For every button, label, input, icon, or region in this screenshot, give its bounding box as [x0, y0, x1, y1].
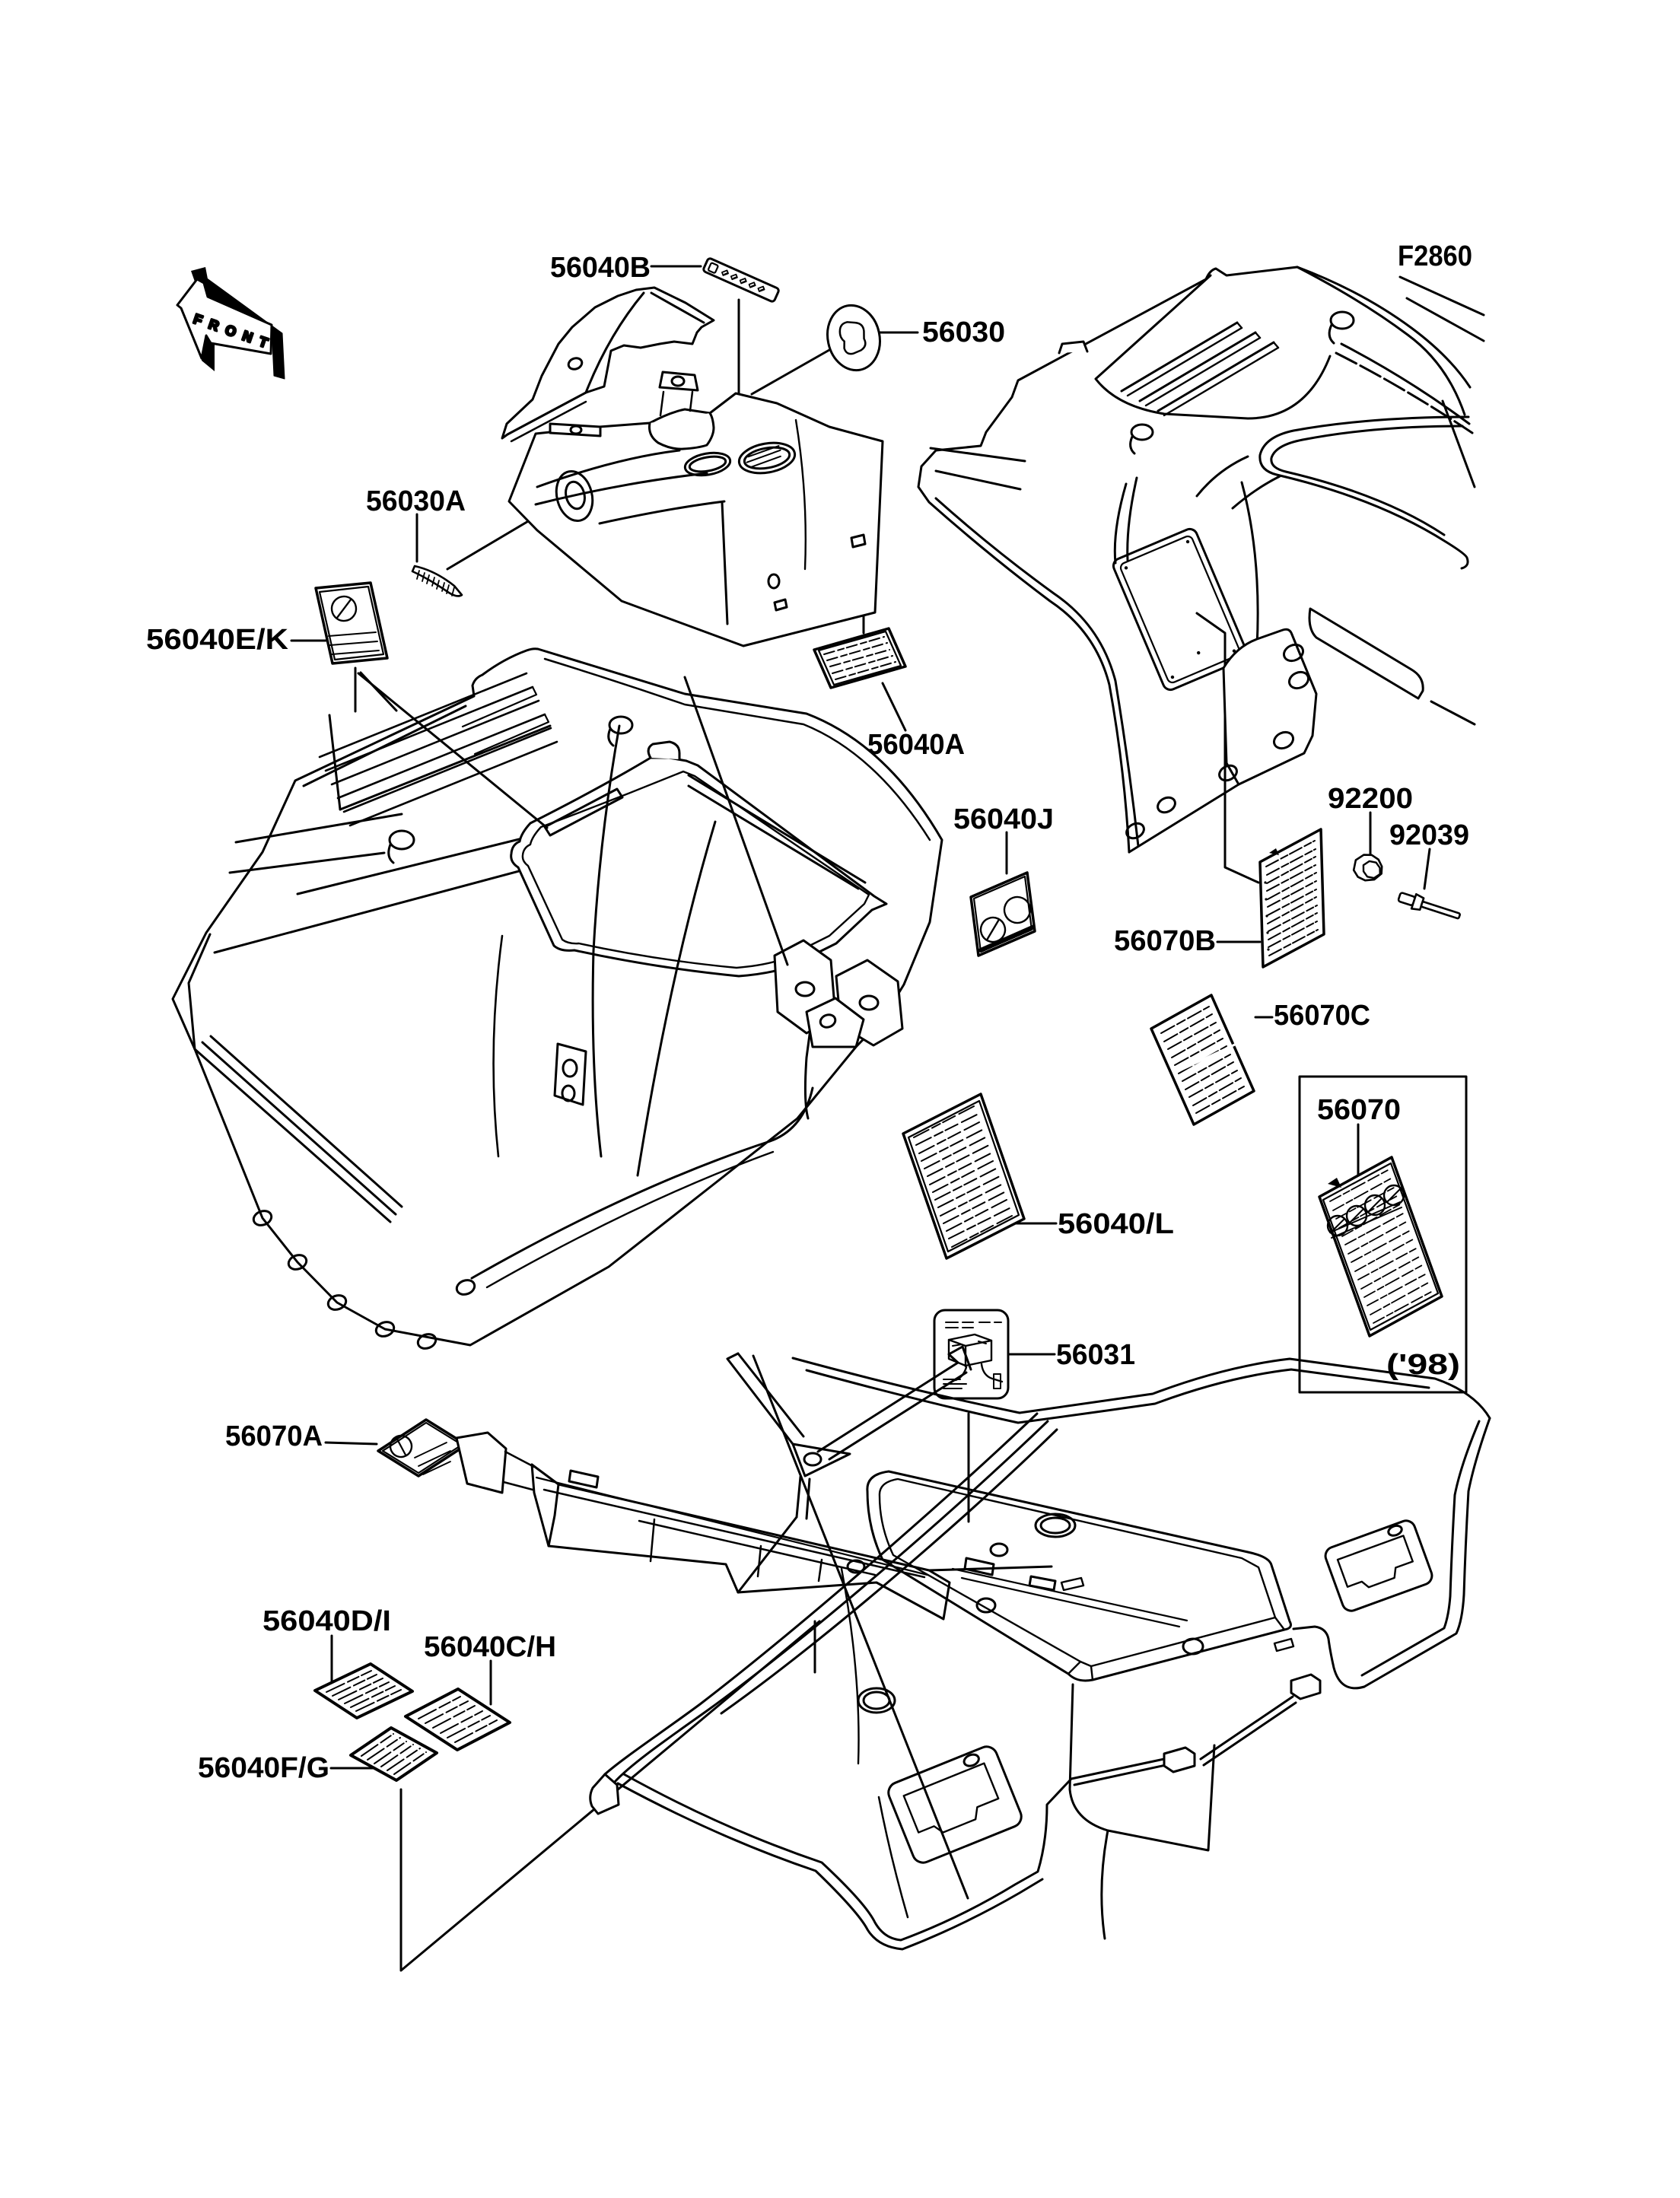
svg-text:56040C/H: 56040C/H	[424, 1631, 556, 1663]
svg-text:56070B: 56070B	[1114, 925, 1216, 957]
svg-text:56040E/K: 56040E/K	[146, 624, 289, 656]
svg-text:56040F/G: 56040F/G	[198, 1752, 329, 1784]
svg-text:92039: 92039	[1389, 819, 1469, 851]
svg-text:92200: 92200	[1328, 783, 1413, 815]
svg-text:56030: 56030	[922, 316, 1005, 348]
svg-text:56040A: 56040A	[867, 729, 965, 761]
svg-text:56031: 56031	[1056, 1339, 1135, 1371]
svg-text:F2860: F2860	[1398, 240, 1472, 272]
svg-text:56040/L: 56040/L	[1058, 1208, 1174, 1240]
svg-text:56070A: 56070A	[225, 1420, 323, 1452]
svg-text:56070C: 56070C	[1274, 1000, 1370, 1032]
svg-text:56040J: 56040J	[953, 803, 1054, 835]
svg-text:56040D/I: 56040D/I	[262, 1605, 391, 1637]
svg-text:56030A: 56030A	[366, 485, 466, 517]
svg-text:56070: 56070	[1317, 1094, 1401, 1126]
svg-text:56040B: 56040B	[550, 252, 651, 284]
